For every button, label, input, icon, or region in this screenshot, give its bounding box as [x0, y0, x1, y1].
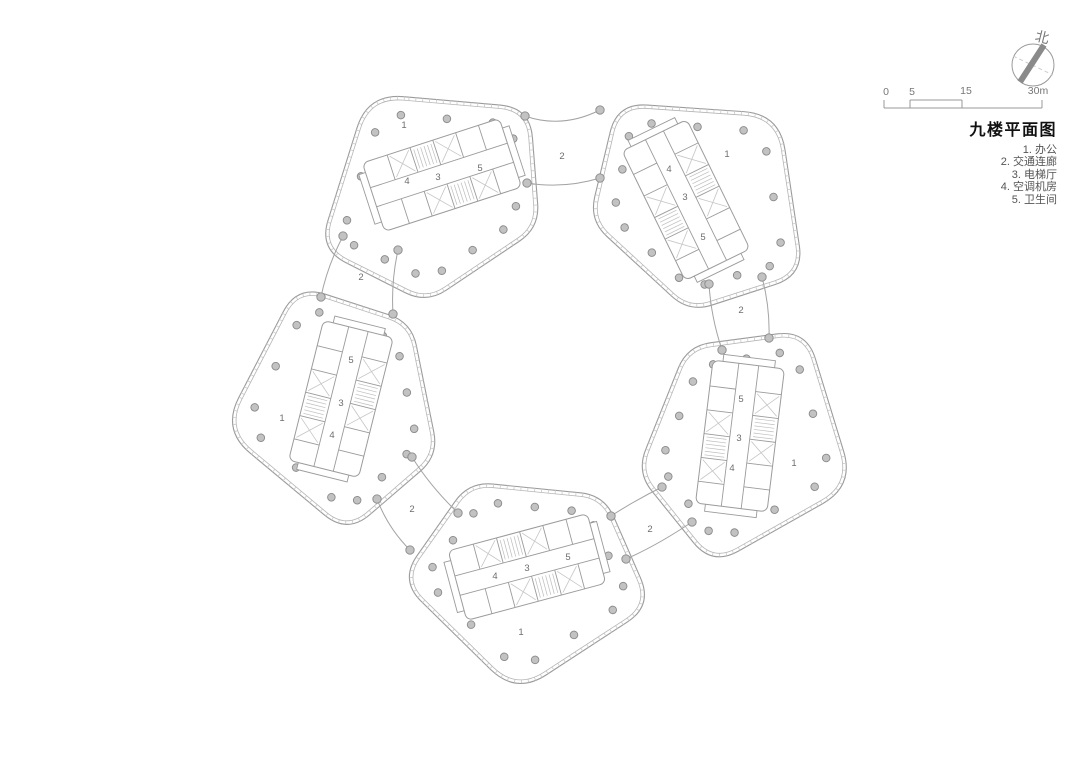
room-number-label: 4 — [729, 463, 734, 474]
room-number-label: 1 — [401, 120, 406, 131]
room-number-label: 3 — [435, 172, 440, 183]
corridor-inner-wall — [611, 487, 662, 516]
room-number-label: 5 — [738, 394, 743, 405]
room-number-label: 2 — [738, 305, 743, 316]
column-marker — [494, 499, 502, 507]
column-marker — [658, 483, 666, 491]
legend-item: 2. 交通连廊 — [969, 156, 1057, 168]
column-marker — [394, 246, 402, 254]
column-marker — [521, 112, 529, 120]
column-marker — [705, 280, 713, 288]
column-marker — [469, 509, 477, 517]
floor-plan-page: 1111122222333334444455555 北 0 5 15 30m 九… — [0, 0, 1080, 764]
column-marker — [596, 106, 604, 114]
column-marker — [467, 620, 475, 628]
towers-layer — [210, 37, 888, 695]
room-number-label: 2 — [559, 151, 564, 162]
room-number-label: 5 — [348, 355, 353, 366]
room-number-label: 3 — [524, 563, 529, 574]
corridor-inner-wall — [527, 178, 600, 185]
column-marker — [454, 509, 462, 517]
column-marker — [434, 588, 442, 596]
corridor-outer-wall — [525, 110, 600, 121]
column-marker — [765, 334, 773, 342]
legend-item: 5. 卫生间 — [969, 194, 1057, 206]
north-label: 北 — [1034, 28, 1051, 47]
title-block: 九楼平面图 1. 办公 2. 交通连廊 3. 电梯厅 4. 空调机房 5. 卫生… — [969, 116, 1057, 206]
scale-tick-5: 5 — [909, 86, 915, 98]
north-needle-icon — [1020, 45, 1044, 82]
room-number-label: 1 — [518, 627, 523, 638]
room-number-label: 3 — [736, 433, 741, 444]
scale-tick-30m: 30m — [1028, 85, 1049, 97]
column-marker — [406, 546, 414, 554]
column-marker — [609, 606, 617, 614]
column-marker — [500, 653, 508, 661]
room-number-label: 4 — [492, 571, 497, 582]
column-marker — [531, 656, 539, 664]
column-marker — [408, 453, 416, 461]
column-marker — [688, 518, 696, 526]
room-number-label: 3 — [338, 398, 343, 409]
column-marker — [567, 507, 575, 515]
column-marker — [428, 563, 436, 571]
column-marker — [596, 174, 604, 182]
column-marker — [619, 582, 627, 590]
legend-list: 1. 办公 2. 交通连廊 3. 电梯厅 4. 空调机房 5. 卫生间 — [969, 144, 1057, 206]
room-number-label: 1 — [279, 413, 284, 424]
scale-tick-0: 0 — [883, 86, 889, 98]
scale-tick-15: 15 — [960, 85, 972, 97]
column-marker — [570, 631, 578, 639]
column-marker — [389, 310, 397, 318]
page-title: 九楼平面图 — [969, 116, 1057, 140]
room-number-label: 4 — [329, 430, 334, 441]
column-marker — [758, 273, 766, 281]
legend-item: 4. 空调机房 — [969, 181, 1057, 193]
column-marker — [373, 495, 381, 503]
room-number-label: 4 — [666, 164, 671, 175]
column-marker — [607, 512, 615, 520]
room-number-label: 2 — [647, 524, 652, 535]
scale-bar: 0 5 15 30m — [883, 85, 1048, 108]
column-marker — [622, 555, 630, 563]
floor-plan-drawing: 1111122222333334444455555 北 0 5 15 30m — [0, 0, 1080, 764]
room-number-label: 1 — [724, 149, 729, 160]
legend-item: 1. 办公 — [969, 144, 1057, 156]
room-number-label: 5 — [565, 552, 570, 563]
room-number-label: 4 — [404, 176, 409, 187]
room-number-label: 5 — [700, 232, 705, 243]
corridor-outer-wall — [377, 499, 410, 550]
column-marker — [339, 232, 347, 240]
column-marker — [317, 293, 325, 301]
column-marker — [523, 179, 531, 187]
column-marker — [531, 503, 539, 511]
legend-item: 3. 电梯厅 — [969, 169, 1057, 181]
column-marker — [718, 346, 726, 354]
north-indicator: 北 — [1012, 28, 1054, 86]
column-marker — [449, 536, 457, 544]
room-number-label: 2 — [409, 504, 414, 515]
room-number-label: 5 — [477, 163, 482, 174]
room-number-label: 3 — [682, 192, 687, 203]
room-number-label: 1 — [791, 458, 796, 469]
room-number-label: 2 — [358, 272, 363, 283]
